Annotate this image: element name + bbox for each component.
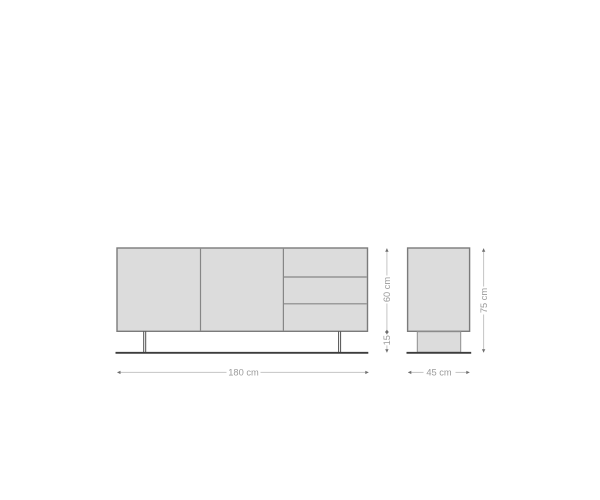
svg-text:180 cm: 180 cm [228,368,259,378]
svg-text:60 cm: 60 cm [382,277,392,303]
svg-text:45 cm: 45 cm [426,368,452,378]
svg-text:75 cm: 75 cm [479,288,489,314]
svg-text:15: 15 [382,335,392,345]
